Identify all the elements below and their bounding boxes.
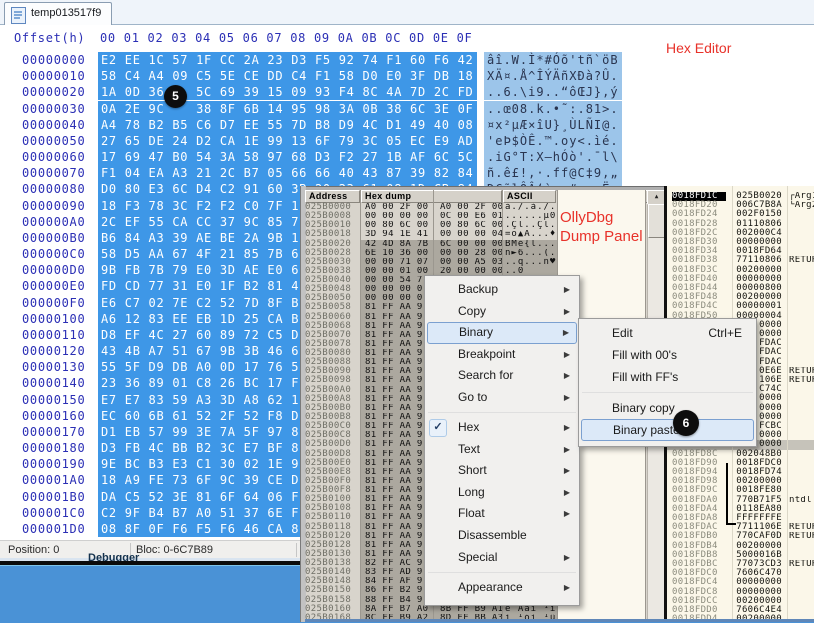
status-position: Position: 0 bbox=[8, 544, 59, 556]
dump-row-ascii[interactable]: .Çl..Çl. bbox=[503, 221, 557, 230]
stack-row-comment: └Arg2 bbox=[789, 201, 814, 210]
hex-row-offset: 000001D0 bbox=[22, 521, 85, 537]
menu-item-label: Fill with FF's bbox=[612, 366, 678, 388]
hex-row-offset: 00000190 bbox=[22, 456, 85, 472]
dump-row-ascii[interactable]: à./.à./. bbox=[503, 203, 557, 212]
hex-row-bytes[interactable]: 1A 0D 36 5C 69 39 15 09 93 F4 8C 4A 7D 2… bbox=[98, 84, 477, 100]
hex-row-ascii[interactable]: âî.W.Ì*#Óõ'tñ`öB bbox=[484, 52, 622, 68]
dump-row-ascii[interactable]: ......µ0 bbox=[503, 212, 557, 221]
tab-temp-file[interactable]: temp013517f9 bbox=[4, 2, 112, 25]
hex-row-bytes[interactable]: F1 04 EA A3 21 2C B7 05 66 66 40 43 87 3… bbox=[98, 165, 477, 181]
submenu-arrow-icon: ▶ bbox=[564, 439, 570, 461]
dump-row-ascii[interactable]: n►6...(. bbox=[503, 249, 557, 258]
submenu-item-binary-paste[interactable]: Binary paste bbox=[581, 419, 754, 441]
menu-item-label: Binary paste bbox=[613, 420, 680, 440]
hex-row-offset: 00000110 bbox=[22, 327, 85, 343]
submenu-arrow-icon: ▶ bbox=[564, 365, 570, 387]
context-menu: Backup▶Copy▶Binary▶Breakpoint▶Search for… bbox=[424, 275, 580, 606]
hex-row[interactable]: 0000005027 65 DE 24 D2 CA 1E 99 13 6F 79… bbox=[0, 133, 814, 149]
context-menu-item-copy[interactable]: Copy▶ bbox=[427, 301, 577, 323]
menu-item-label: Float bbox=[458, 503, 485, 525]
hex-row-ascii[interactable]: ¤x²µÆ×îU}¸ÙLÑI@. bbox=[484, 117, 622, 133]
context-menu-item-breakpoint[interactable]: Breakpoint▶ bbox=[427, 344, 577, 366]
context-menu-item-appearance[interactable]: Appearance▶ bbox=[427, 577, 577, 599]
submenu-arrow-icon: ▶ bbox=[564, 577, 570, 599]
submenu-item-fill-with-ff-s[interactable]: Fill with FF's bbox=[581, 366, 754, 388]
dump-row[interactable]: 025B003000 00 71 07 00 00 A5 03..q...ñ♥ bbox=[300, 258, 646, 267]
menu-item-label: Hex bbox=[458, 417, 479, 439]
submenu-arrow-icon: ▶ bbox=[564, 344, 570, 366]
hex-row-offset: 00000160 bbox=[22, 408, 85, 424]
hex-row-offset: 000000E0 bbox=[22, 278, 85, 294]
submenu-arrow-icon: ▶ bbox=[564, 503, 570, 525]
dump-row[interactable]: 025B00286E 10 36 00 00 00 28 00n►6...(. bbox=[300, 249, 646, 258]
stack-row-comment: ┌Arg1 bbox=[789, 192, 814, 201]
context-menu-item-special[interactable]: Special▶ bbox=[427, 547, 577, 569]
hex-editor-annotation: Hex Editor bbox=[666, 40, 731, 56]
status-bloc: Bloc: 0-6C7B89 bbox=[136, 544, 213, 556]
step-badge-6: 6 bbox=[673, 410, 699, 436]
hex-row[interactable]: 0000001058 C4 A4 09 C5 5E CE DD C4 F1 58… bbox=[0, 68, 814, 84]
menu-item-label: Long bbox=[458, 482, 485, 504]
hex-row[interactable]: 00000040A4 78 B2 B5 C6 D7 EE 55 7D B8 D9… bbox=[0, 117, 814, 133]
context-menu-item-short[interactable]: Short▶ bbox=[427, 460, 577, 482]
hex-row-offset: 000001A0 bbox=[22, 472, 85, 488]
hex-row-bytes[interactable]: A4 78 B2 B5 C6 D7 EE 55 7D B8 D9 4C D1 4… bbox=[98, 117, 477, 133]
submenu-arrow-icon: ▶ bbox=[564, 301, 570, 323]
hex-row-offset: 00000050 bbox=[22, 133, 85, 149]
hex-row-bytes[interactable]: 0A 2E 9C 38 8F 6B 14 95 98 3A 0B 38 6C 3… bbox=[98, 101, 477, 117]
hex-row-bytes[interactable]: 27 65 DE 24 D2 CA 1E 99 13 6F 79 3C 05 E… bbox=[98, 133, 477, 149]
hex-row-offset: 000000A0 bbox=[22, 214, 85, 230]
context-menu-item-text[interactable]: Text▶ bbox=[427, 439, 577, 461]
submenu-item-binary-copy[interactable]: Binary copy bbox=[581, 397, 754, 419]
hex-row-offset: 000000D0 bbox=[22, 262, 85, 278]
stack-column-divider bbox=[787, 186, 788, 622]
context-menu-item-search-for[interactable]: Search for▶ bbox=[427, 365, 577, 387]
hex-row-offset: 00000130 bbox=[22, 359, 85, 375]
hex-row-bytes[interactable]: 17 69 47 B0 54 3A 58 97 68 D3 F2 27 1B A… bbox=[98, 149, 477, 165]
hex-row-offset: 00000020 bbox=[22, 84, 85, 100]
submenu-arrow-icon: ▶ bbox=[564, 417, 570, 439]
menu-item-label: Breakpoint bbox=[458, 344, 515, 366]
submenu-arrow-icon: ▶ bbox=[564, 482, 570, 504]
document-icon bbox=[11, 7, 26, 24]
submenu-separator bbox=[582, 388, 753, 397]
status-divider bbox=[296, 543, 297, 557]
hex-row-offset: 00000170 bbox=[22, 424, 85, 440]
context-menu-separator bbox=[428, 568, 576, 577]
context-menu-item-go-to[interactable]: Go to▶ bbox=[427, 387, 577, 409]
hex-row-ascii[interactable]: ..6.\i9..“ôŒJ},ý bbox=[484, 84, 622, 100]
binary-submenu: EditCtrl+EFill with 00'sFill with FF'sBi… bbox=[578, 318, 757, 447]
context-menu-separator bbox=[428, 408, 576, 417]
dump-row-ascii[interactable]: =ö▲A...♦ bbox=[503, 230, 557, 239]
hex-row-offset: 00000080 bbox=[22, 181, 85, 197]
hex-row-offset: 00000000 bbox=[22, 52, 85, 68]
column-divider bbox=[360, 190, 361, 622]
tab-title: temp013517f9 bbox=[31, 7, 101, 19]
hex-row-offset: 000000B0 bbox=[22, 230, 85, 246]
hex-row-ascii[interactable]: ñ.ê£!,·.ff@C‡9‚„ bbox=[484, 165, 622, 181]
menu-item-label: Go to bbox=[458, 387, 487, 409]
submenu-arrow-icon: ▶ bbox=[564, 547, 570, 569]
hex-row[interactable]: 000000300A 2E 9C 38 8F 6B 14 95 98 3A 0B… bbox=[0, 101, 814, 117]
scrollbar-thumb[interactable] bbox=[648, 204, 665, 238]
submenu-arrow-icon: ▶ bbox=[564, 460, 570, 482]
stack-row-comment: RETUR bbox=[789, 532, 814, 541]
menu-item-label: Short bbox=[458, 460, 487, 482]
menu-item-label: Binary bbox=[459, 323, 493, 343]
stack-row-comment: ntdl bbox=[789, 496, 814, 505]
hex-row-offset: 00000140 bbox=[22, 375, 85, 391]
hex-row-ascii[interactable]: 'eÞ$ÒÊ.™.oy<.ìé. bbox=[484, 133, 622, 149]
submenu-arrow-icon: ▶ bbox=[564, 279, 570, 301]
hex-row-ascii[interactable]: XÄ¤.Å^ÎÝÄñXÐà?Û. bbox=[484, 68, 622, 84]
menu-item-label: Special bbox=[458, 547, 497, 569]
context-menu-item-long[interactable]: Long▶ bbox=[427, 482, 577, 504]
menu-item-label: Backup bbox=[458, 279, 498, 301]
hex-row-offset: 00000070 bbox=[22, 165, 85, 181]
hex-row-offset: 00000040 bbox=[22, 117, 85, 133]
hex-row-bytes[interactable]: E2 EE 1C 57 1F CC 2A 23 D3 F5 92 74 F1 6… bbox=[98, 52, 477, 68]
dump-row[interactable]: 025B01608A FF B7 A0 8B FF B9 A1è Aàì ¹ì bbox=[300, 605, 646, 614]
context-menu-item-disassemble[interactable]: Disassemble bbox=[427, 525, 577, 547]
hex-row-offset: 00000100 bbox=[22, 311, 85, 327]
menu-item-label: Search for bbox=[458, 365, 513, 387]
hex-col-headers: 00 01 02 03 04 05 06 07 08 09 0A 0B 0C 0… bbox=[100, 31, 472, 45]
step-badge-5: 5 bbox=[164, 85, 187, 108]
stack-row-comment: RETUR bbox=[789, 560, 814, 569]
submenu-arrow-icon: ▶ bbox=[564, 387, 570, 409]
submenu-item-fill-with-00-s[interactable]: Fill with 00's bbox=[581, 344, 754, 366]
hex-row-offset: 00000060 bbox=[22, 149, 85, 165]
menu-item-label: Text bbox=[458, 439, 480, 461]
menu-item-label: Copy bbox=[458, 301, 486, 323]
stack-row-comment: RETUR bbox=[789, 376, 814, 385]
menu-item-label: Disassemble bbox=[458, 525, 527, 547]
hex-row-bytes[interactable]: 58 C4 A4 09 C5 5E CE DD C4 F1 58 D0 E0 3… bbox=[98, 68, 477, 84]
hex-row-offset: 000000C0 bbox=[22, 246, 85, 262]
stack-row-comment: RETUR bbox=[789, 256, 814, 265]
submenu-item-edit[interactable]: EditCtrl+E bbox=[581, 322, 754, 344]
stack-row-comment: RETUR bbox=[789, 523, 814, 532]
context-menu-item-backup[interactable]: Backup▶ bbox=[427, 279, 577, 301]
hex-row-offset: 00000090 bbox=[22, 198, 85, 214]
hex-row[interactable]: 0000006017 69 47 B0 54 3A 58 97 68 D3 F2… bbox=[0, 149, 814, 165]
dump-header-hex[interactable]: Hex dump bbox=[361, 190, 502, 203]
hex-row-offset: 00000030 bbox=[22, 101, 85, 117]
hex-row-offset: 000001B0 bbox=[22, 489, 85, 505]
hex-row-ascii[interactable]: .iG°T:X—hÓò'.¯l\ bbox=[484, 149, 622, 165]
hex-row-offset: 000001C0 bbox=[22, 505, 85, 521]
tab-bar: temp013517f9 bbox=[0, 0, 814, 25]
hex-row-offset: 00000120 bbox=[22, 343, 85, 359]
menu-shortcut: Ctrl+E bbox=[708, 322, 742, 344]
screenshot-root: { "hex_editor": { "tab_title": "temp0135… bbox=[0, 0, 814, 622]
dump-row-ascii[interactable]: è Aàì ¹ì bbox=[503, 605, 557, 614]
dump-row-ascii[interactable]: ..q...ñ♥ bbox=[503, 258, 557, 267]
hex-row-offset: 00000150 bbox=[22, 392, 85, 408]
ollydbg-annotation-line2: Dump Panel bbox=[560, 228, 643, 245]
hex-row-ascii[interactable]: ..œ08.k.•˜:.81>. bbox=[484, 101, 622, 117]
submenu-arrow-icon: ▶ bbox=[563, 323, 569, 343]
dump-header-ascii[interactable]: ASCII bbox=[503, 190, 556, 203]
check-icon: ✓ bbox=[429, 419, 447, 437]
hex-row-offset: 000000F0 bbox=[22, 295, 85, 311]
menu-item-label: Appearance bbox=[458, 577, 523, 599]
context-menu-item-hex[interactable]: ✓Hex▶ bbox=[427, 417, 577, 439]
offset-label: Offset(h) bbox=[14, 31, 85, 45]
context-menu-item-float[interactable]: Float▶ bbox=[427, 503, 577, 525]
menu-item-label: Fill with 00's bbox=[612, 344, 677, 366]
ollydbg-annotation-line1: OllyDbg bbox=[560, 209, 613, 226]
stack-row-comment: RETUR bbox=[789, 367, 814, 376]
hex-row[interactable]: 00000070F1 04 EA A3 21 2C B7 05 66 66 40… bbox=[0, 165, 814, 181]
menu-item-label: Edit bbox=[612, 322, 633, 344]
context-menu-item-binary[interactable]: Binary▶ bbox=[427, 322, 577, 344]
dump-row-ascii[interactable]: BMè{l... bbox=[503, 240, 557, 249]
call-frame-bracket bbox=[726, 463, 736, 525]
menu-item-label: Binary copy bbox=[612, 397, 675, 419]
hex-row[interactable]: 000000201A 0D 36 5C 69 39 15 09 93 F4 8C… bbox=[0, 84, 814, 100]
hex-row-offset: 00000180 bbox=[22, 440, 85, 456]
hex-row-offset: 00000010 bbox=[22, 68, 85, 84]
